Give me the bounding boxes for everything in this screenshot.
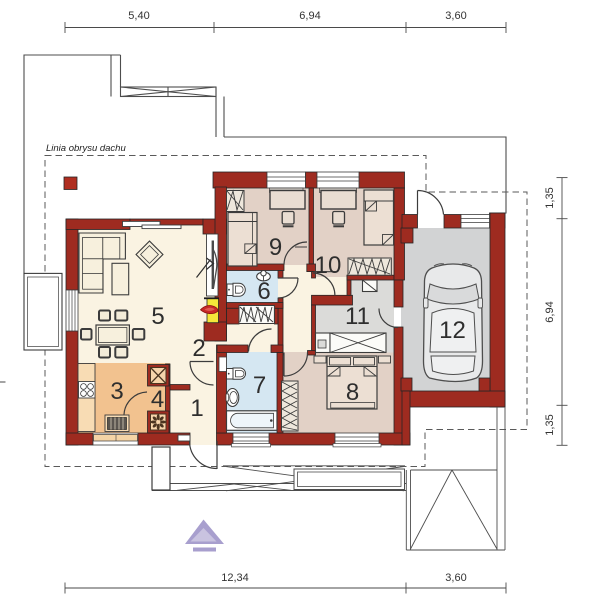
svg-text:2: 2 (192, 335, 205, 362)
svg-text:10: 10 (315, 252, 342, 279)
svg-text:3,60: 3,60 (445, 10, 466, 22)
svg-text:12,34: 12,34 (221, 572, 249, 584)
svg-text:8: 8 (346, 379, 359, 406)
svg-text:3,60: 3,60 (445, 572, 466, 584)
svg-text:5,40: 5,40 (128, 10, 149, 22)
svg-text:12: 12 (439, 317, 466, 344)
svg-text:5: 5 (151, 303, 164, 330)
svg-text:1,35: 1,35 (544, 187, 556, 208)
svg-text:Linia obrysu dachu: Linia obrysu dachu (46, 143, 126, 154)
svg-text:9: 9 (269, 234, 282, 261)
svg-text:7: 7 (253, 372, 266, 399)
svg-text:3: 3 (110, 378, 123, 405)
svg-text:11: 11 (345, 303, 370, 330)
svg-text:1: 1 (190, 395, 203, 422)
svg-text:6: 6 (257, 278, 270, 305)
svg-text:6,94: 6,94 (544, 301, 556, 322)
svg-text:1,35: 1,35 (544, 414, 556, 435)
svg-text:4: 4 (151, 386, 164, 413)
svg-text:6,94: 6,94 (299, 10, 320, 22)
